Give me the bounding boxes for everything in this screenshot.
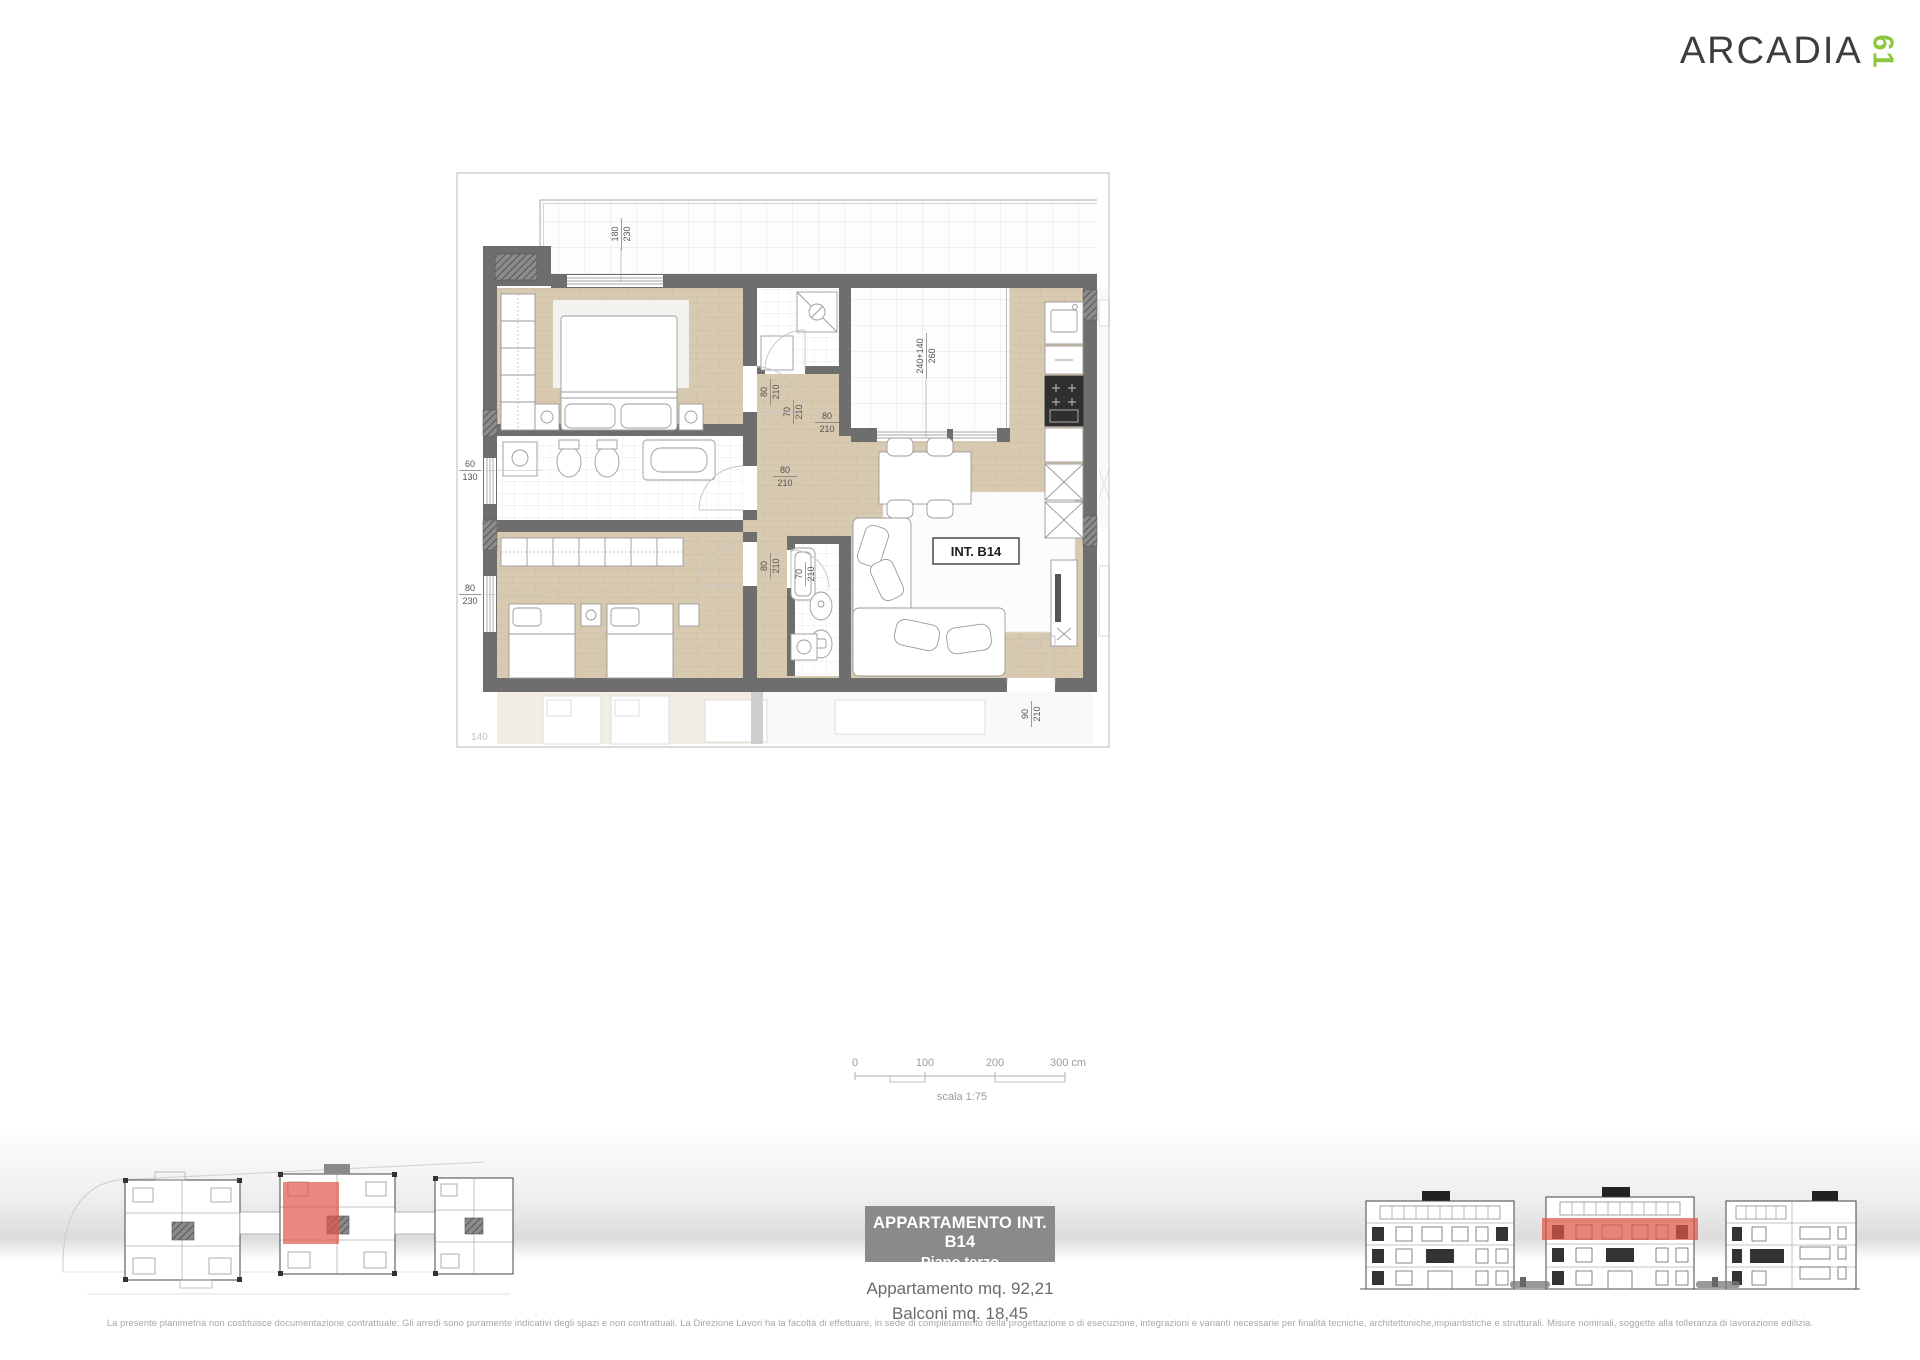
unit-label: INT. B14 [933,538,1019,564]
tv-bench [1051,560,1077,646]
key-site-plan [55,1150,515,1310]
svg-text:90: 90 [1020,709,1030,719]
dining-table [879,452,971,504]
svg-text:INT. B14: INT. B14 [951,544,1002,559]
chair [887,500,913,518]
area-apartment: Appartamento mq. 92,21 [660,1276,1260,1301]
tv [1055,574,1061,622]
brand-suffix: 61 [1865,34,1898,68]
svg-text:60: 60 [465,459,475,469]
svg-text:70: 70 [794,569,804,579]
title-line1: APPARTAMENTO INT. B14 [865,1206,1055,1252]
kitchen-unit [1045,428,1083,462]
floor-plan: 180 230 240+140 260 60 130 80 230 [455,170,1115,750]
chair [887,438,913,456]
svg-text:70: 70 [782,407,792,417]
elevation-highlight [1542,1218,1698,1240]
svg-text:210: 210 [771,384,781,399]
title-line2: Piano terzo [865,1252,1055,1271]
svg-text:80: 80 [780,465,790,475]
bidet [595,447,619,477]
svg-text:210: 210 [771,558,781,573]
dim-terrace-door: 240+140 [915,338,925,373]
brand-logo: ARCADIA 61 [1645,16,1905,86]
svg-text:210: 210 [819,424,834,434]
scale-tick: 100 [916,1057,934,1069]
svg-text:230: 230 [462,596,477,606]
corner-label: 140 [471,732,488,743]
title-block: APPARTAMENTO INT. B14 Piano terzo [865,1206,1055,1262]
svg-text:210: 210 [777,478,792,488]
svg-text:80: 80 [465,583,475,593]
svg-text:80: 80 [822,411,832,421]
scale-label: scala 1:75 [937,1091,987,1103]
svg-text:230: 230 [622,226,632,241]
scale-tick: 300 cm [1050,1057,1086,1069]
cooktop [1045,376,1083,426]
chair [927,438,953,456]
svg-text:80: 80 [759,387,769,397]
brochure-page: ARCADIA 61 [0,0,1920,1360]
svg-text:80: 80 [759,561,769,571]
brand-name: ARCADIA [1680,30,1863,73]
scale-tick: 0 [852,1057,858,1069]
chair [927,500,953,518]
svg-text:260: 260 [927,348,937,363]
closet [501,538,683,566]
nightstand [679,604,699,626]
svg-text:210: 210 [1032,706,1042,721]
elevations [1360,1185,1860,1305]
site-plan-highlight [283,1182,339,1244]
svg-text:130: 130 [462,472,477,482]
toilet [557,447,581,477]
svg-text:210: 210 [806,566,816,581]
dim-window-bedroom: 180 [610,226,620,241]
svg-text:210: 210 [794,404,804,419]
scale-tick: 200 [986,1057,1004,1069]
disclaimer-text: La presente planimetria non costituisce … [0,1318,1920,1328]
scale-bar: 0 100 200 300 cm scala 1:75 [840,1052,1090,1108]
